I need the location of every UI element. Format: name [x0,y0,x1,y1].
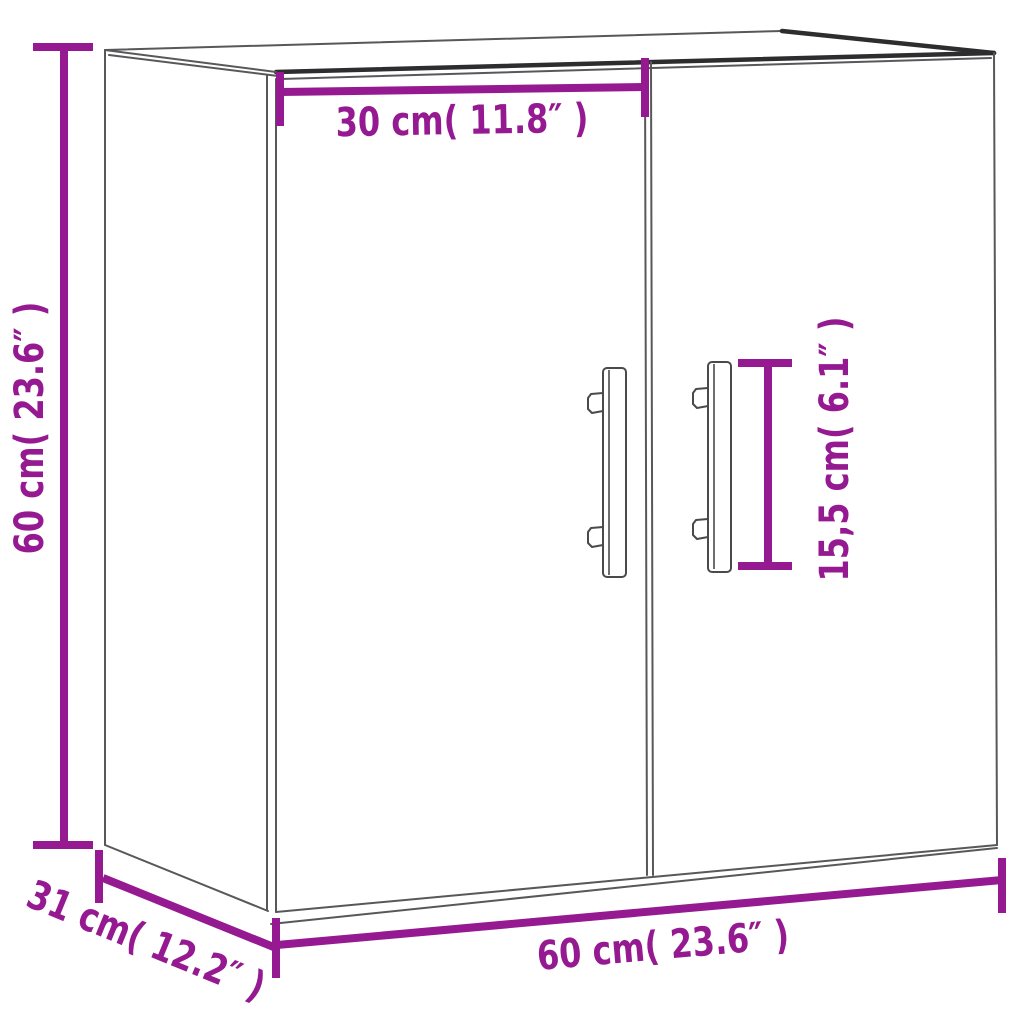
cabinet-drawing [0,0,1024,1024]
cabinet-outline [105,31,997,924]
dimension-line-handle-length [738,363,792,566]
dimension-diagram: 30 cm( 11.8″ ) 60 cm( 23.6″ ) 15,5 cm( 6… [0,0,1024,1024]
cabinet-top-face [105,31,994,76]
height-label: 60 cm( 23.6″ ) [10,302,50,555]
door-width-label: 30 cm( 11.8″ ) [335,99,588,143]
right-door-handle [693,362,731,572]
handle-length-label: 15,5 cm( 6.1″ ) [815,317,855,582]
left-door [276,58,991,912]
left-door-handle [588,368,626,577]
cabinet-left-panel [105,50,268,911]
